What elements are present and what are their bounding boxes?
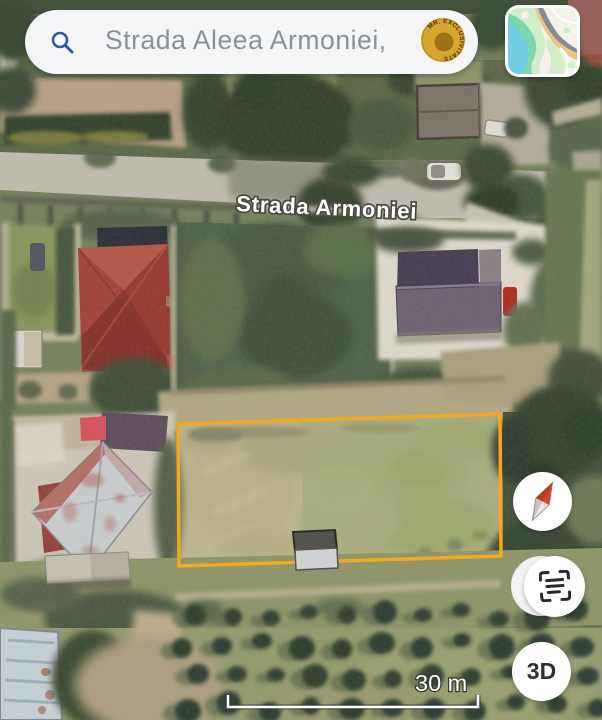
svg-text:30 m: 30 m: [415, 670, 467, 696]
